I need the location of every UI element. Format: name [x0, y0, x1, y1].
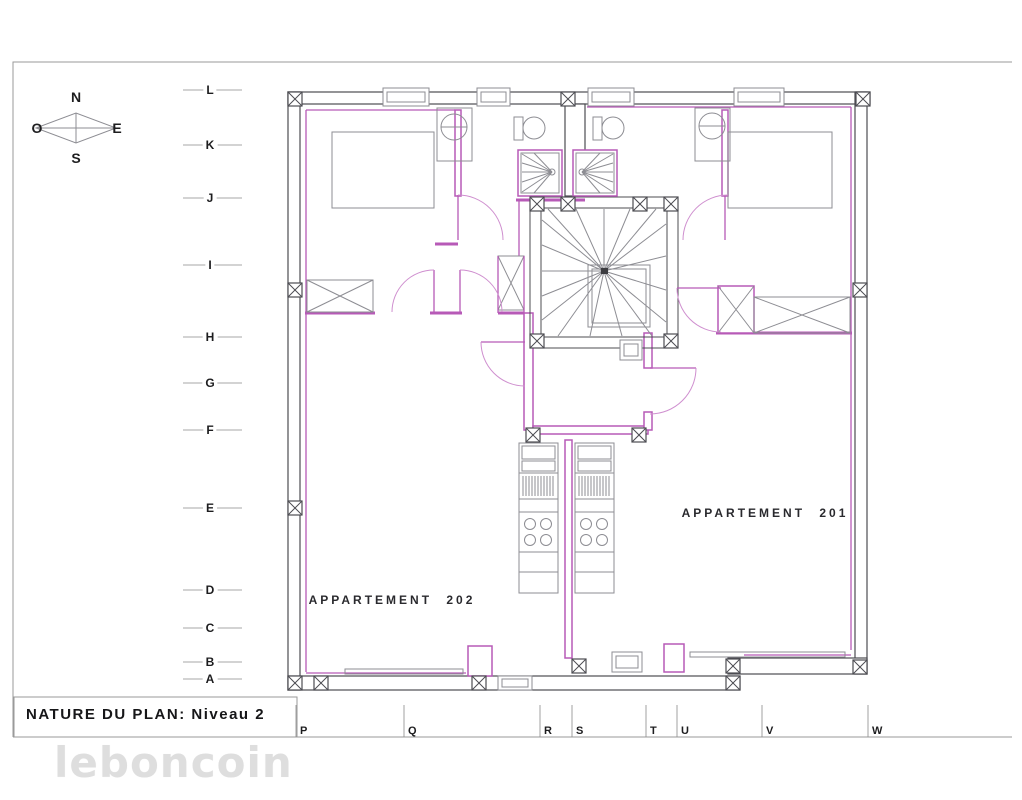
window-bottom-left: [498, 676, 532, 690]
grid-row-label: J: [204, 192, 217, 204]
wall-post: [632, 428, 646, 442]
grid-row-label: L: [203, 84, 216, 96]
wall-post: [288, 283, 302, 297]
wall-post: [530, 334, 544, 348]
grid-row-label: H: [203, 331, 218, 343]
compass-rose-icon: [36, 113, 116, 143]
stair-landing: [588, 265, 650, 327]
grid-row-label: B: [203, 656, 218, 668]
grid-row-label: K: [203, 139, 218, 151]
compass-east-label: E: [112, 120, 121, 136]
wall-post: [288, 676, 302, 690]
shower-202: [518, 150, 562, 196]
wall-post: [288, 501, 302, 515]
door-bedroom-201: [683, 195, 728, 240]
wall-post: [664, 334, 678, 348]
grid-col-label: P: [300, 726, 307, 737]
door-corridor-201: [677, 288, 721, 332]
bedroom-202-wall: [455, 110, 461, 196]
closet-202-mid: [498, 256, 524, 313]
wall-post: [530, 197, 544, 211]
apartment-202-label: APPARTEMENT 202: [309, 593, 476, 607]
grid-col-label: T: [650, 726, 657, 737]
grid-col-label: W: [872, 726, 882, 737]
wall-post: [314, 676, 328, 690]
toilet-tank-201: [593, 117, 602, 140]
grid-row-label: G: [202, 377, 217, 389]
grid-row-label: E: [203, 502, 217, 514]
grid-col-label: Q: [408, 726, 417, 737]
hall-cabinet: [620, 340, 642, 360]
shower-201: [573, 150, 617, 196]
grid-row-label: C: [203, 622, 218, 634]
window: [477, 88, 510, 106]
floor-plan-drawing: [0, 0, 1022, 800]
wall-post: [633, 197, 647, 211]
toilet-202: [523, 117, 545, 139]
door-bedroom-202: [458, 195, 503, 240]
window: [383, 88, 429, 106]
grid-col-label: R: [544, 726, 552, 737]
wall-post: [561, 92, 575, 106]
door-closet-left: [392, 270, 434, 312]
wall-post: [853, 283, 867, 297]
grid-col-label: S: [576, 726, 583, 737]
wall-post: [526, 428, 540, 442]
window: [734, 88, 784, 106]
stair-tread: [576, 209, 604, 271]
stair-tread: [604, 271, 652, 336]
plan-nature-title: NATURE DU PLAN: Niveau 2: [26, 706, 265, 723]
stair-tread: [604, 209, 656, 271]
wall-post: [664, 197, 678, 211]
stair-tread: [542, 245, 604, 271]
toilet-201: [602, 117, 624, 139]
closets: [307, 256, 850, 333]
hall-wall-left: [524, 313, 533, 430]
grid-col-label: V: [766, 726, 773, 737]
wall-post: [726, 659, 740, 673]
wall-post: [472, 676, 486, 690]
window: [588, 88, 634, 106]
hall-wall-right-lower: [644, 412, 652, 430]
leboncoin-watermark: leboncoin: [54, 738, 293, 787]
wall-post: [853, 660, 867, 674]
door-apartment-202: [481, 342, 525, 386]
hall-wall-bottom: [533, 426, 648, 434]
pillar-right: [664, 644, 684, 672]
kitchen-divider-wall: [565, 440, 572, 658]
door-apartment-201: [650, 368, 696, 414]
closet-201-long: [754, 297, 850, 333]
bed-202: [332, 132, 434, 208]
stair-tread: [604, 271, 666, 290]
wall-post: [856, 92, 870, 106]
stair-tread: [548, 209, 604, 271]
kitchen-counter: [519, 443, 558, 593]
closet-201-small: [718, 286, 754, 333]
stair-tread: [604, 271, 666, 322]
wall-post: [572, 659, 586, 673]
floor-plan-sheet: N O E S LKJIHGFEDCBA PQRSTUVW APPARTEMEN…: [0, 0, 1022, 800]
kitchen-counter: [575, 443, 614, 593]
grid-row-label: A: [203, 673, 218, 685]
bed-201: [728, 132, 832, 208]
stair-tread: [604, 271, 622, 336]
wall-post: [561, 197, 575, 211]
stair-tread: [542, 220, 604, 271]
grid-col-label: U: [681, 726, 689, 737]
grid-row-label: I: [205, 259, 214, 271]
pillar-left: [468, 646, 492, 676]
toilet-tank-202: [514, 117, 523, 140]
apartment-201-label: APPARTEMENT 201: [682, 506, 849, 520]
hall-wall-right-upper: [644, 333, 652, 368]
closet-202-left: [307, 280, 373, 312]
door-closet-right: [460, 270, 502, 312]
grid-row-label: D: [203, 584, 218, 596]
grid-row-label: F: [203, 424, 216, 436]
compass-north-label: N: [71, 89, 81, 105]
stair-newel: [601, 268, 608, 274]
staircase: [530, 197, 678, 348]
wall-post: [726, 676, 740, 690]
compass-west-label: O: [32, 120, 43, 136]
wall-post: [288, 92, 302, 106]
compass-south-label: S: [71, 150, 80, 166]
